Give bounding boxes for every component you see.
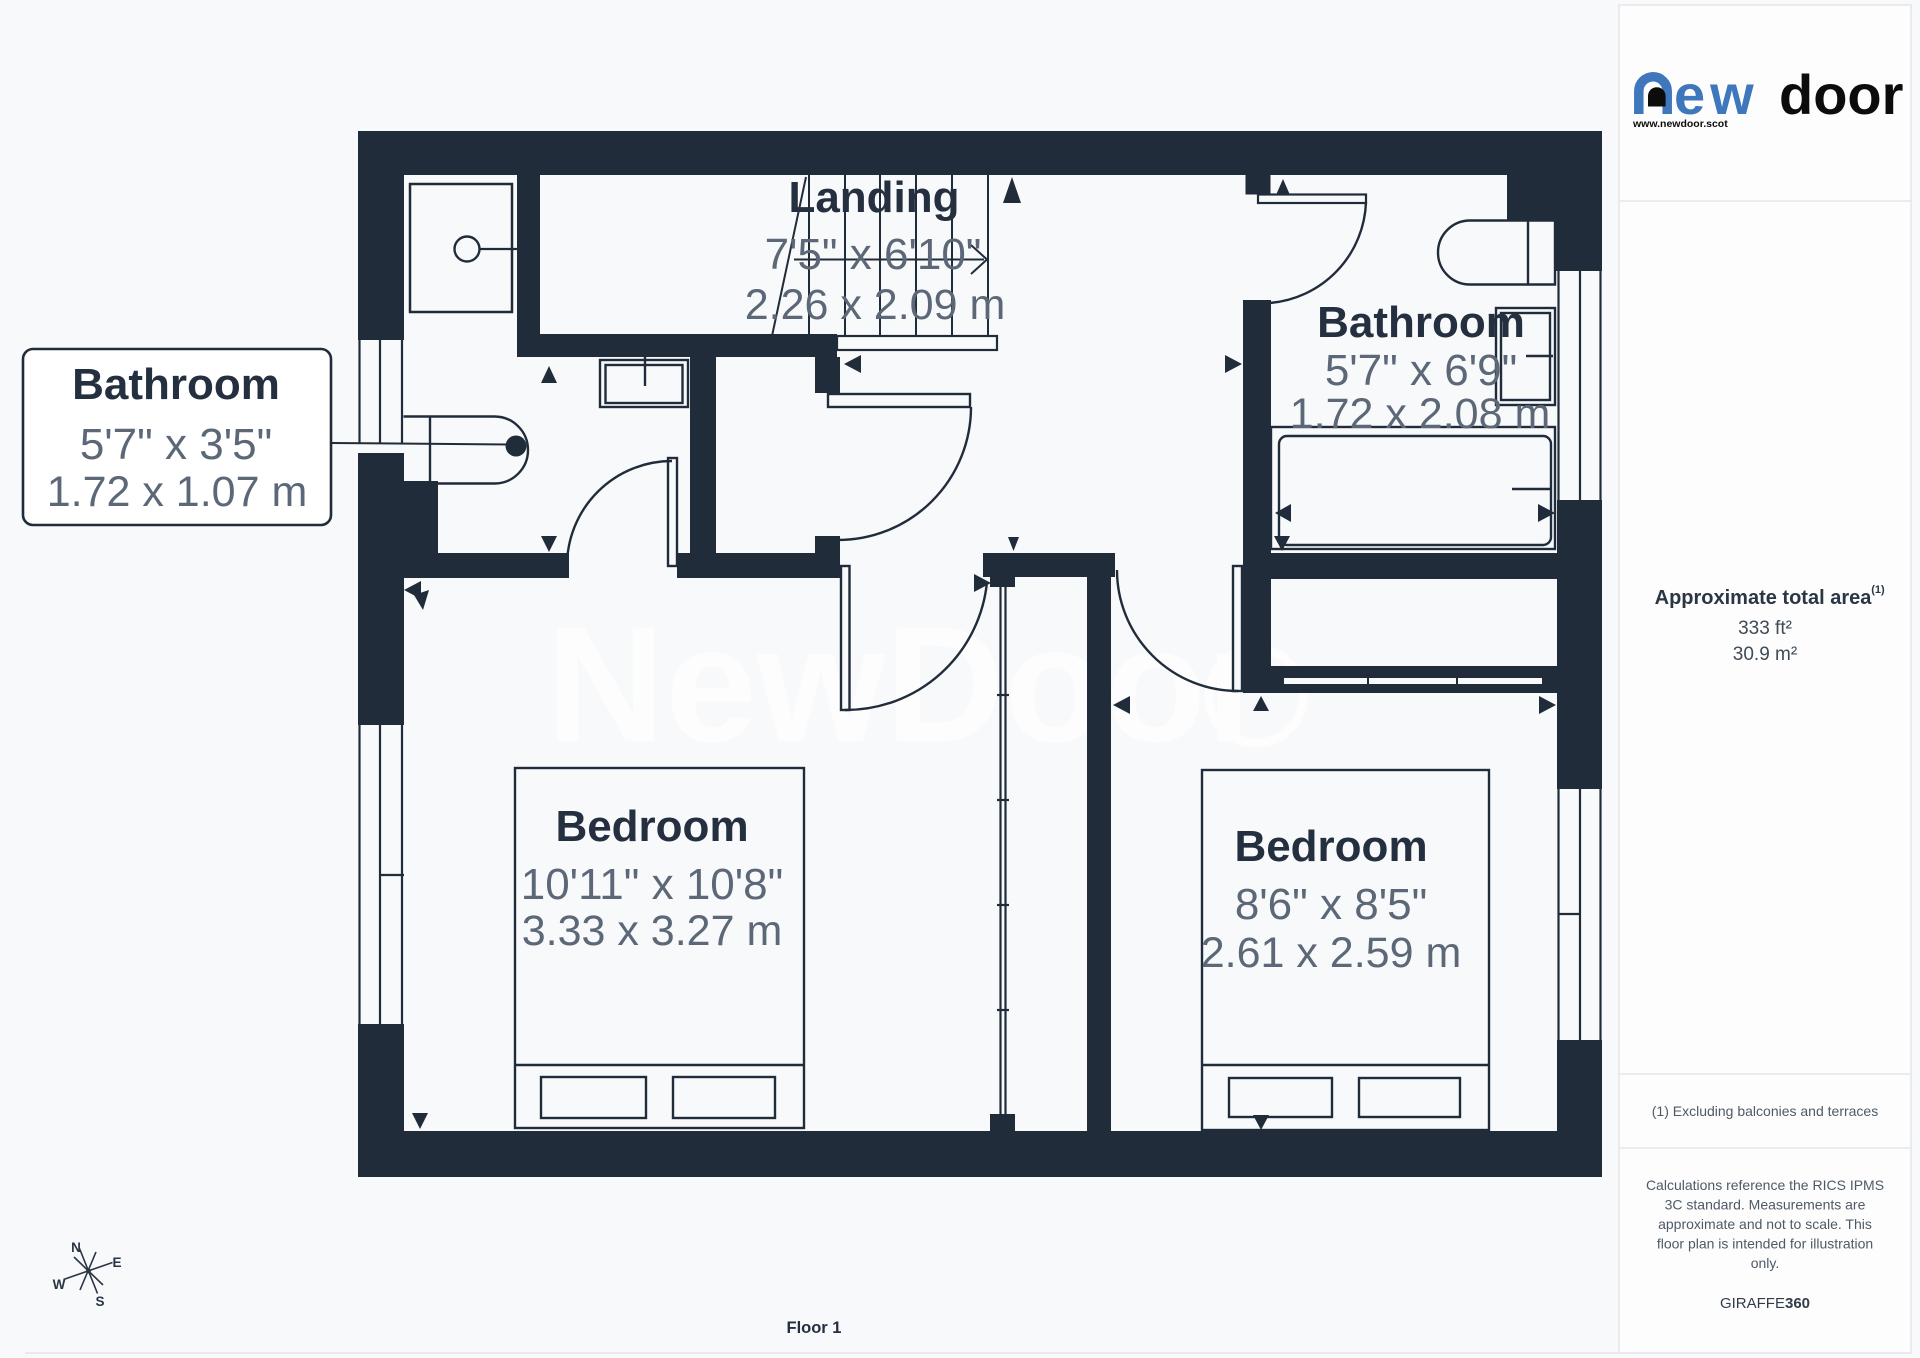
- svg-text:(1) Excluding balconies and te: (1) Excluding balconies and terraces: [1652, 1103, 1878, 1119]
- svg-text:(1): (1): [1871, 584, 1885, 596]
- svg-text:Calculations reference the RIC: Calculations reference the RICS IPMS: [1646, 1177, 1884, 1193]
- svg-text:3C standard. Measurements are: 3C standard. Measurements are: [1665, 1197, 1866, 1213]
- svg-text:ew: ew: [1674, 63, 1759, 126]
- svg-text:2.26 x 2.09 m: 2.26 x 2.09 m: [745, 281, 1006, 329]
- svg-text:1.72 x 2.08 m: 1.72 x 2.08 m: [1290, 390, 1551, 438]
- svg-text:Floor 1: Floor 1: [786, 1319, 841, 1337]
- svg-text:S: S: [95, 1294, 104, 1309]
- svg-text:door: door: [1779, 63, 1903, 126]
- svg-text:1.72 x 1.07 m: 1.72 x 1.07 m: [47, 468, 308, 516]
- svg-text:www.newdoor.scot: www.newdoor.scot: [1632, 118, 1728, 130]
- svg-text:2.61 x 2.59 m: 2.61 x 2.59 m: [1201, 929, 1462, 977]
- svg-text:E: E: [112, 1255, 121, 1270]
- svg-text:floor plan is intended for ill: floor plan is intended for illustration: [1657, 1236, 1873, 1252]
- svg-text:NewDoor: NewDoor: [546, 592, 1270, 776]
- svg-text:5'7" x 3'5": 5'7" x 3'5": [80, 420, 272, 469]
- svg-text:only.: only.: [1751, 1255, 1780, 1271]
- svg-text:Bathroom: Bathroom: [72, 360, 280, 409]
- svg-text:3.33 x 3.27 m: 3.33 x 3.27 m: [522, 907, 783, 955]
- svg-text:Landing: Landing: [788, 173, 959, 222]
- svg-text:8'6" x 8'5": 8'6" x 8'5": [1235, 880, 1427, 929]
- svg-text:30.9 m²: 30.9 m²: [1733, 644, 1797, 665]
- svg-text:333 ft²: 333 ft²: [1738, 618, 1792, 639]
- svg-text:Approximate total area: Approximate total area: [1655, 587, 1873, 609]
- svg-text:W: W: [53, 1277, 66, 1292]
- svg-text:Bathroom: Bathroom: [1317, 298, 1525, 347]
- svg-text:approximate and not to scale.: approximate and not to scale. This: [1658, 1216, 1872, 1232]
- svg-text:Bedroom: Bedroom: [1234, 822, 1427, 871]
- svg-text:10'11" x 10'8": 10'11" x 10'8": [521, 860, 784, 909]
- svg-text:N: N: [71, 1240, 81, 1255]
- svg-text:Bedroom: Bedroom: [555, 802, 748, 851]
- svg-text:7'5" x 6'10": 7'5" x 6'10": [765, 230, 982, 279]
- svg-text:5'7" x 6'9": 5'7" x 6'9": [1325, 346, 1517, 395]
- svg-text:GIRAFFE360: GIRAFFE360: [1720, 1295, 1810, 1312]
